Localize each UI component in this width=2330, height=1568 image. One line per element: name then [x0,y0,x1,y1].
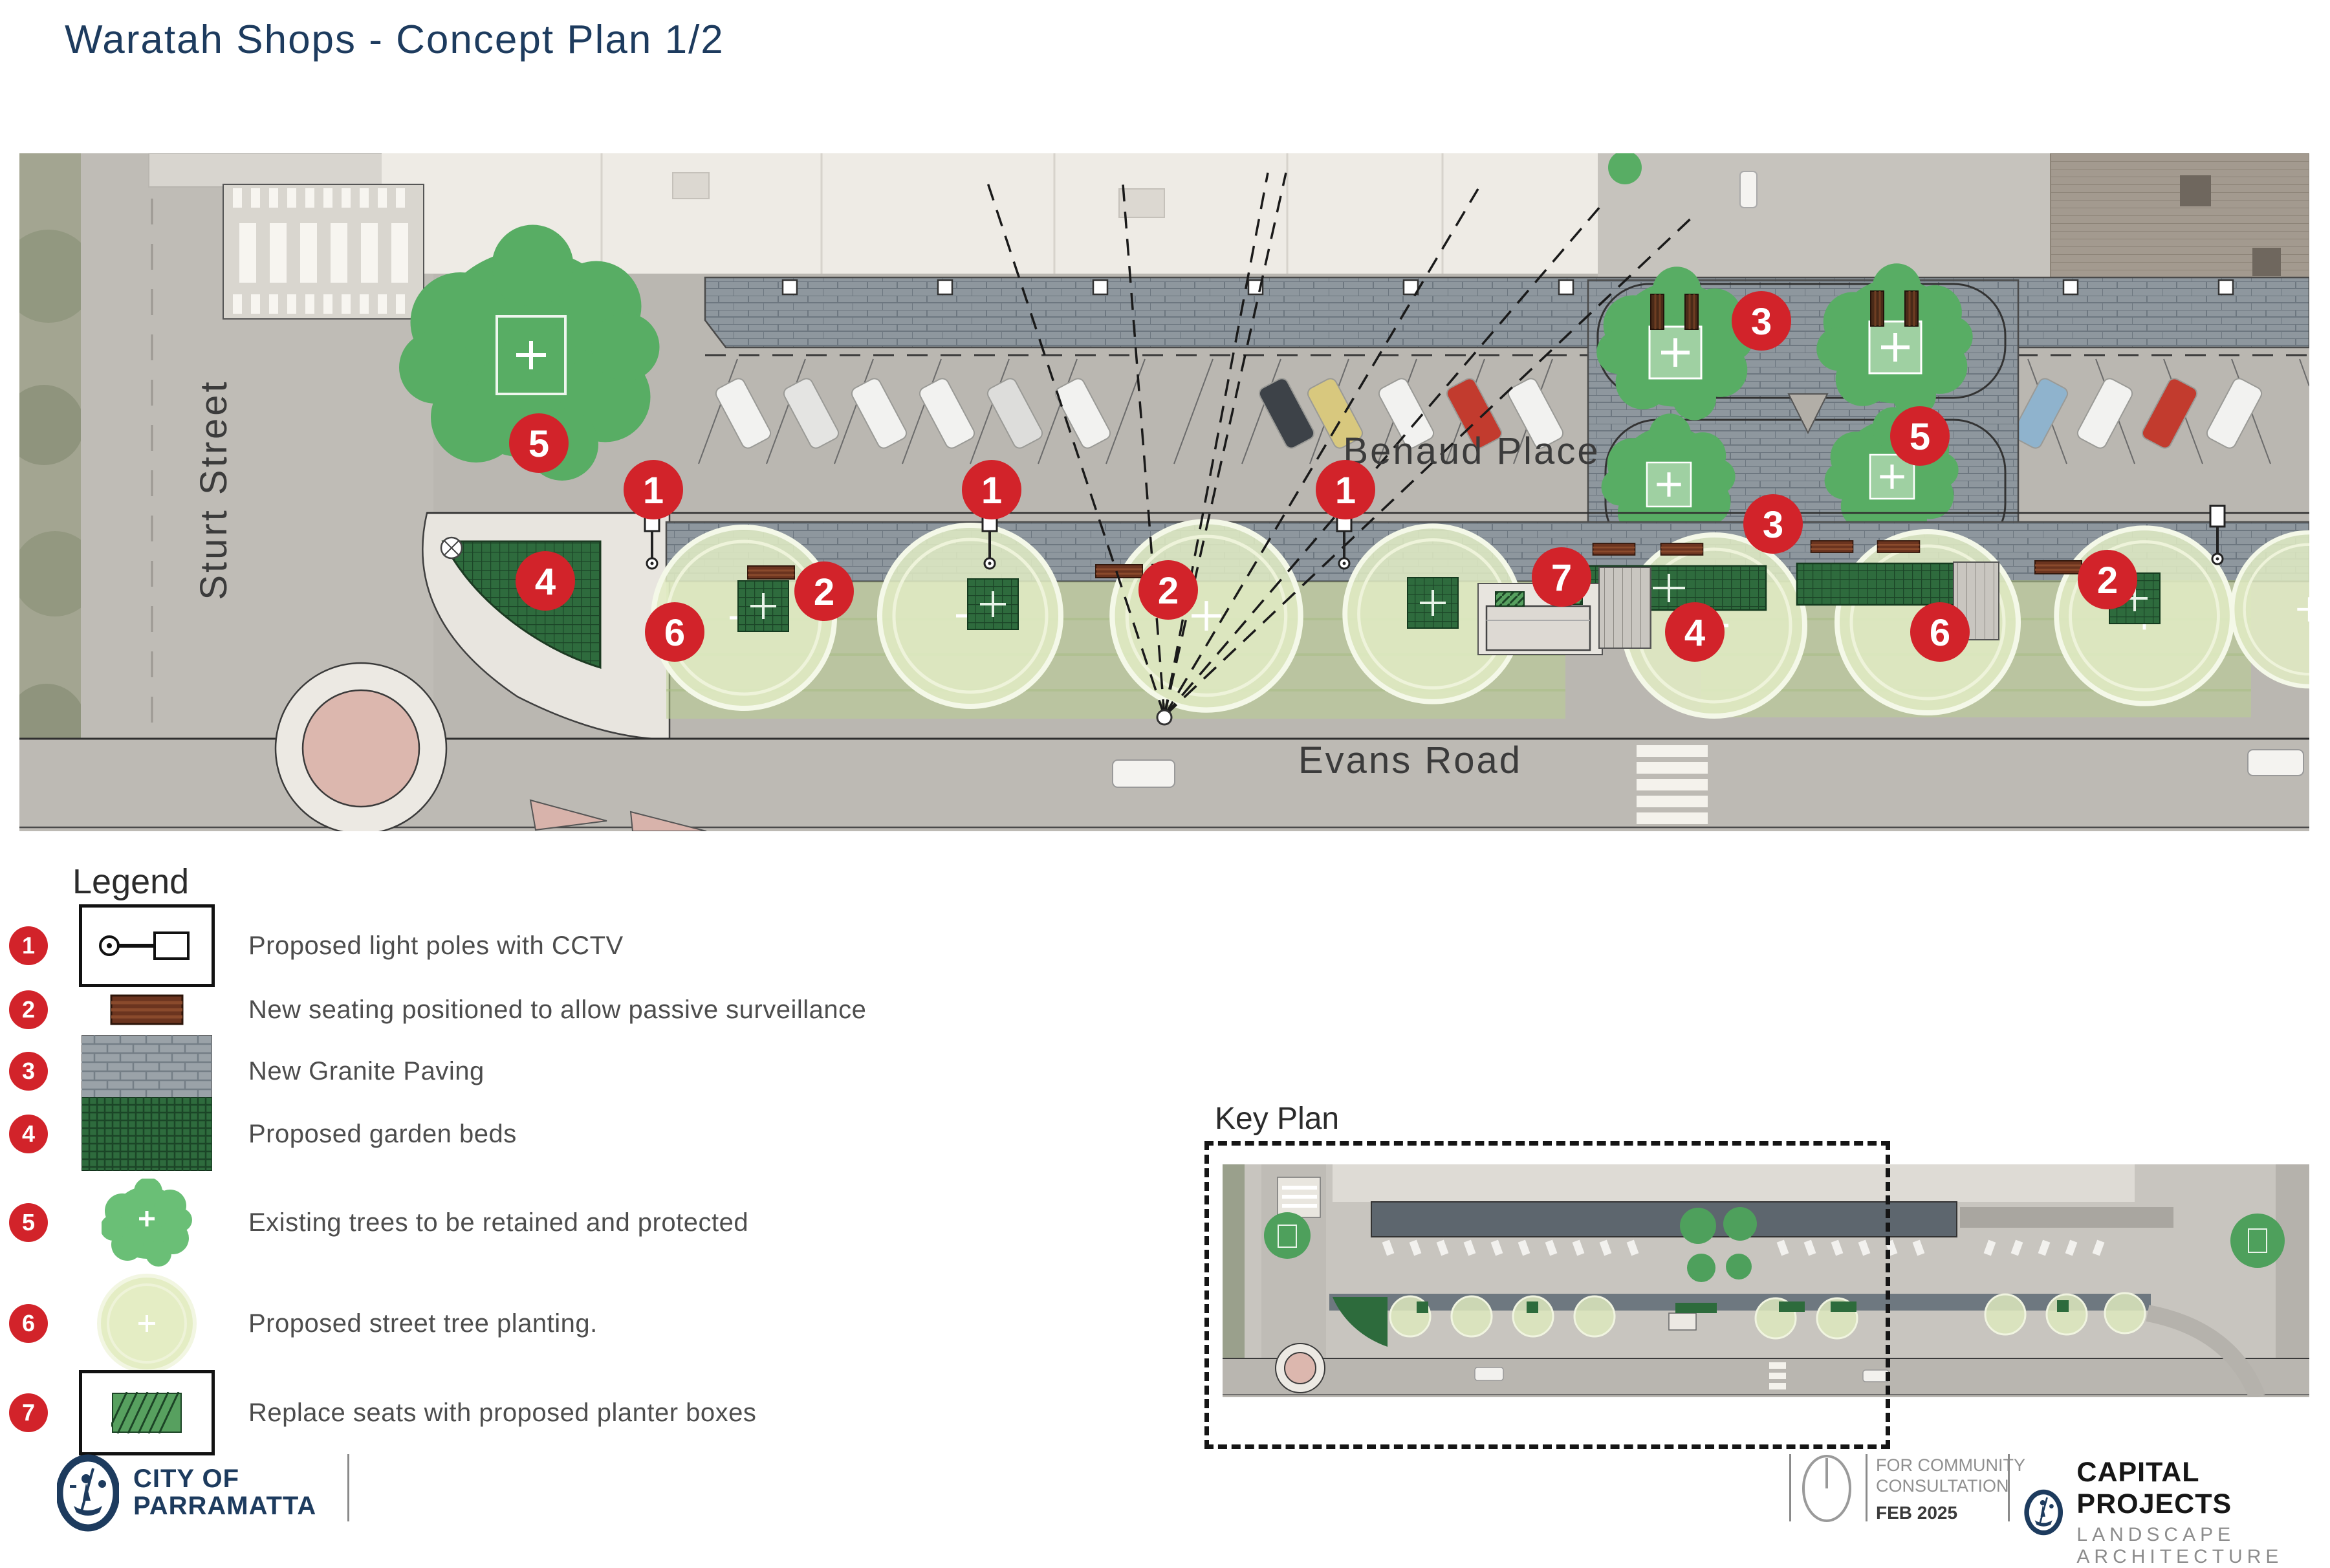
svg-text:3: 3 [1751,301,1772,343]
capital-projects-logo: CAPITAL PROJECTS LANDSCAPE ARCHITECTURE [2023,1457,2330,1568]
svg-text:5: 5 [1910,416,1930,458]
existing-tree-icon [72,1179,221,1267]
studio-subtitle: LANDSCAPE ARCHITECTURE [2076,1524,2330,1568]
legend-label-1: Proposed light poles with CCTV [248,931,624,961]
plan-marker-6: 6 [1910,602,1970,662]
legend-badge-5: 5 [9,1203,48,1242]
legend-label-5: Existing trees to be retained and protec… [248,1208,748,1237]
legend-badge-1: 1 [9,926,48,965]
footer-divider-4 [2008,1454,2010,1521]
council-logo: CITY OF PARRAMATTA [57,1454,316,1532]
legend-item-planter-boxes: 7 Replace seats with proposed planter bo… [9,1370,756,1455]
svg-text:2: 2 [2097,560,2118,602]
plan-marker-4: 4 [516,551,575,611]
plan-marker-7: 7 [1532,547,1591,607]
proposed-tree-icon [72,1273,221,1374]
legend-label-7: Replace seats with proposed planter boxe… [248,1399,756,1428]
svg-text:6: 6 [1930,612,1950,654]
keyplan-extent-box [1204,1141,1890,1449]
plan-marker-2: 2 [794,561,854,621]
plan-marker-5: 5 [509,413,569,473]
raised-crossing-sturt [223,184,424,319]
label-evans-road: Evans Road [1298,739,1522,781]
legend-badge-6: 6 [9,1304,48,1343]
legend-heading: Legend [72,862,189,902]
footer-divider-1 [347,1454,349,1521]
parramatta-emblem-icon [57,1454,119,1532]
svg-text:4: 4 [535,561,556,603]
plan-marker-6: 6 [645,602,704,662]
concept-plan-map: Sturt Street Benaud Place Evans Road 111… [19,153,2309,831]
footer-divider-2 [1789,1454,1791,1521]
label-benaud-place: Benaud Place [1343,430,1600,472]
label-sturt-street: Sturt Street [193,379,235,600]
svg-text:1: 1 [981,470,1002,512]
plan-marker-2: 2 [2078,550,2137,609]
legend-badge-2: 2 [9,990,48,1029]
garden-bed-swatch [72,1097,221,1171]
council-logo-text: CITY OF PARRAMATTA [133,1466,316,1519]
page-title: Waratah Shops - Concept Plan 1/2 [65,17,724,63]
legend-item-garden-beds: 4 Proposed garden beds [9,1096,517,1172]
plan-marker-3: 3 [1743,494,1803,554]
svg-text:1: 1 [1335,470,1356,512]
svg-text:2: 2 [1158,570,1179,612]
plan-marker-3: 3 [1732,291,1791,351]
svg-text:1: 1 [643,470,664,512]
planter-box-icon [72,1370,221,1455]
legend-item-proposed-trees: 6 Proposed street tree planting. [9,1273,598,1374]
legend-item-existing-trees: 5 Existing trees to be retained and prot… [9,1179,748,1267]
legend-label-3: New Granite Paving [248,1057,485,1086]
legend-badge-7: 7 [9,1393,48,1432]
plan-marker-5: 5 [1890,406,1950,466]
keyplan-heading: Key Plan [1215,1101,1339,1137]
clock-icon [1801,1453,1853,1524]
light-pole-cctv-icon [72,904,221,987]
legend-label-6: Proposed street tree planting. [248,1309,598,1338]
legend-badge-3: 3 [9,1052,48,1091]
consultation-line1: FOR COMMUNITY [1876,1455,2025,1476]
legend-label-4: Proposed garden beds [248,1120,517,1149]
svg-text:6: 6 [664,612,685,654]
svg-text:7: 7 [1551,557,1572,599]
footer: CITY OF PARRAMATTA FOR COMMUNITY CONSULT… [0,1449,2330,1537]
legend-item-light-poles: 1 Proposed light poles with CCTV [9,904,624,987]
plan-marker-1: 1 [962,460,1021,519]
council-line1: CITY OF [133,1466,316,1493]
plan-marker-2: 2 [1138,560,1198,620]
svg-text:2: 2 [814,571,834,613]
svg-text:3: 3 [1763,504,1783,546]
plan-marker-1: 1 [1316,460,1375,519]
cctv-pole-point [1157,710,1171,724]
consultation-line2: CONSULTATION [1876,1476,2025,1497]
footer-divider-3 [1866,1454,1867,1521]
svg-text:5: 5 [528,423,549,465]
studio-name: CAPITAL PROJECTS [2076,1457,2330,1520]
legend-label-2: New seating positioned to allow passive … [248,996,866,1025]
consultation-note: FOR COMMUNITY CONSULTATION FEB 2025 [1876,1455,2025,1523]
legend-badge-4: 4 [9,1115,48,1153]
bench-seat-icon [72,993,221,1027]
consultation-date: FEB 2025 [1876,1502,2025,1523]
legend-item-seating: 2 New seating positioned to allow passiv… [9,982,866,1038]
plan-marker-1: 1 [624,460,683,519]
plan-marker-4: 4 [1665,602,1725,662]
svg-text:4: 4 [1684,612,1705,654]
council-line2: PARRAMATTA [133,1493,316,1520]
